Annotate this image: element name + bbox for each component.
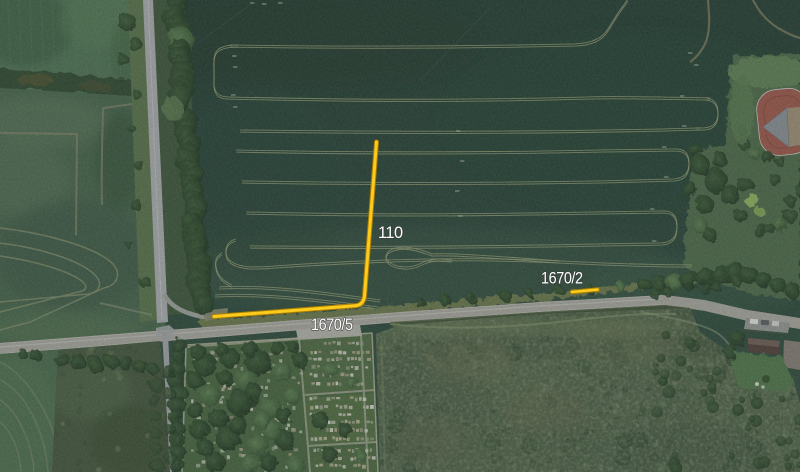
svg-text:110: 110 [378,223,403,242]
svg-text:1670/5: 1670/5 [311,316,353,334]
svg-text:1670/2: 1670/2 [541,269,583,287]
